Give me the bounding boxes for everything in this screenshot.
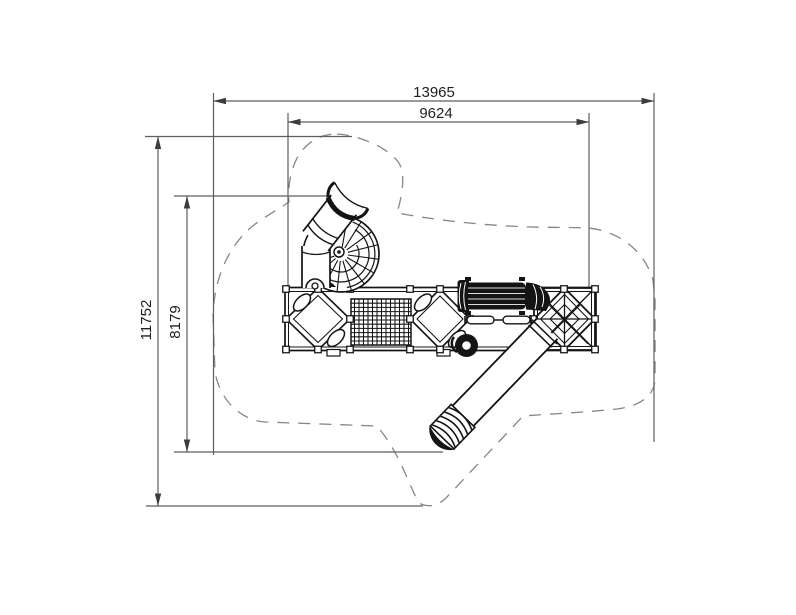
- crawl-tunnel: [458, 277, 551, 315]
- step-tab: [327, 350, 340, 357]
- arrowhead-right-icon: [577, 119, 590, 125]
- arrowhead-top-icon: [184, 196, 190, 209]
- dimension-overall-width: 13965: [214, 84, 655, 104]
- dimension-label-inner-height: 8179: [167, 305, 184, 338]
- playground-structure: [283, 182, 599, 456]
- arrowhead-bottom-icon: [184, 440, 190, 453]
- dimension-overall-height: 11752: [138, 137, 161, 507]
- arrowhead-left-icon: [288, 119, 301, 125]
- arrowhead-right-icon: [642, 98, 655, 104]
- dimension-inner-height: 8179: [167, 196, 190, 452]
- arrowhead-left-icon: [214, 98, 227, 104]
- climbing-net: [351, 299, 411, 345]
- dimension-label-inner-width: 9624: [419, 105, 452, 122]
- plan-view-svg: 13965 9624 11752 8179: [0, 0, 796, 615]
- dimension-inner-width: 9624: [288, 105, 589, 125]
- dimension-label-overall-height: 11752: [138, 300, 155, 341]
- arrowhead-bottom-icon: [155, 494, 161, 507]
- arrowhead-top-icon: [155, 137, 161, 150]
- dimension-label-overall-width: 13965: [413, 84, 455, 101]
- spiral-tube-slide: [298, 182, 379, 292]
- technical-drawing-canvas: 13965 9624 11752 8179: [0, 0, 796, 615]
